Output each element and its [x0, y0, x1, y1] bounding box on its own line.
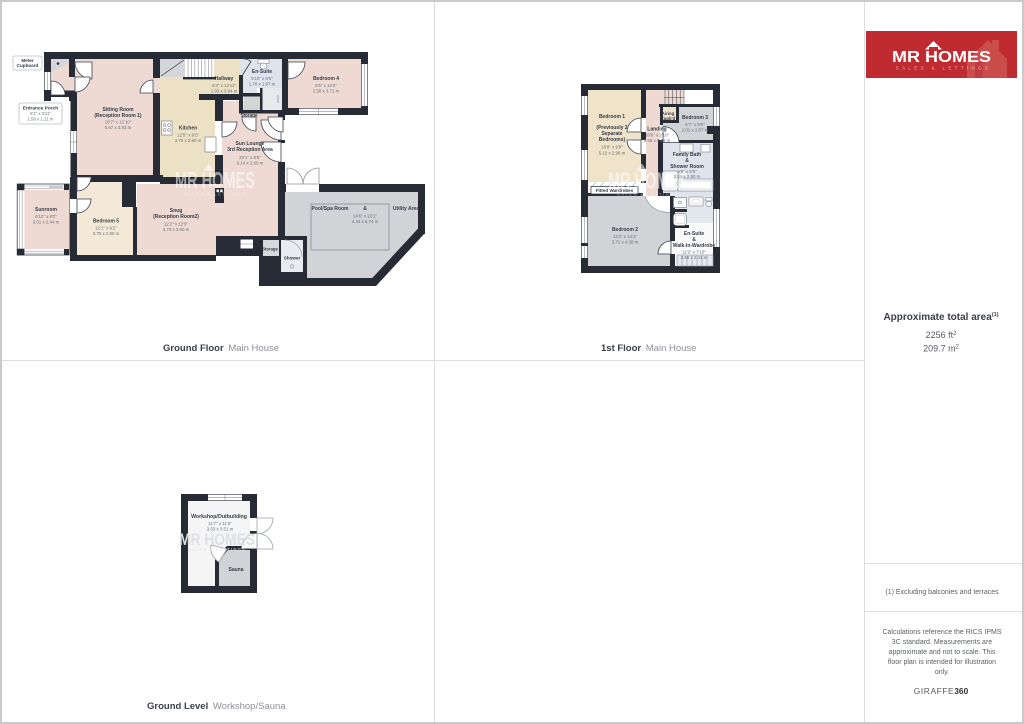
- svg-text:SALES & LETTINGS: SALES & LETTINGS: [617, 192, 679, 198]
- svg-text:5'10" x 6'5": 5'10" x 6'5": [251, 76, 273, 81]
- svg-text:Workshop/Outbuilding: Workshop/Outbuilding: [191, 514, 247, 520]
- svg-text:MR HOMES: MR HOMES: [175, 167, 255, 193]
- svg-text:12'2" x 14'4": 12'2" x 14'4": [613, 234, 638, 239]
- svg-text:12'5" x 9'2": 12'5" x 9'2": [177, 133, 199, 138]
- svg-text:(1) Excluding balconies and te: (1) Excluding balconies and terraces: [885, 589, 999, 596]
- svg-text:1st Floor Main House: 1st Floor Main House: [601, 343, 696, 354]
- svg-text:only.: only.: [935, 669, 949, 676]
- svg-text:floor plan is intended for ill: floor plan is intended for illustration: [888, 659, 996, 666]
- svg-text:SALES & LETTINGS: SALES & LETTINGS: [188, 547, 246, 552]
- svg-text:1.56 x 1.21 m: 1.56 x 1.21 m: [27, 117, 53, 122]
- svg-text:Utility Area: Utility Area: [393, 206, 419, 212]
- svg-text:6.14 x 2.60 m: 6.14 x 2.60 m: [237, 161, 264, 166]
- svg-text:&: &: [363, 206, 367, 212]
- svg-text:6'3" x 12'11": 6'3" x 12'11": [212, 83, 236, 88]
- svg-text:14'6" x 22'1": 14'6" x 22'1": [353, 214, 378, 219]
- svg-text:3.73 x 3.90 m: 3.73 x 3.90 m: [163, 227, 190, 232]
- svg-text:3.79 x 2.80 m: 3.79 x 2.80 m: [175, 138, 202, 143]
- svg-text:18'7" x 12'10": 18'7" x 12'10": [105, 120, 132, 125]
- svg-text:16'9" x 9'8": 16'9" x 9'8": [601, 145, 623, 150]
- svg-text:18'8" x 2'10": 18'8" x 2'10": [645, 133, 670, 138]
- svg-text:11'9" x 7'10": 11'9" x 7'10": [682, 250, 706, 255]
- svg-text:5.69 x 0.88 m: 5.69 x 0.88 m: [644, 138, 671, 143]
- svg-text:11'7" x 11'6": 11'7" x 11'6": [208, 521, 232, 526]
- svg-text:Bedrooms): Bedrooms): [599, 137, 626, 143]
- svg-text:Bedroom 2: Bedroom 2: [612, 227, 638, 233]
- svg-text:Bedroom 5: Bedroom 5: [93, 219, 119, 225]
- svg-text:MR HOMES: MR HOMES: [892, 49, 991, 66]
- svg-text:3C standard. Measurements are: 3C standard. Measurements are: [892, 639, 992, 646]
- svg-text:Ground Level Workshop/Sauna: Ground Level Workshop/Sauna: [147, 701, 286, 712]
- svg-text:3rd Reception Area: 3rd Reception Area: [227, 147, 273, 153]
- svg-text:approximate and not to scale.: approximate and not to scale. This: [889, 649, 996, 656]
- svg-text:3.01 x 2.44 m: 3.01 x 2.44 m: [33, 220, 60, 225]
- svg-text:(Reception Room2): (Reception Room2): [153, 214, 199, 220]
- svg-text:Sunroom: Sunroom: [35, 207, 57, 213]
- svg-text:12'2" x 12'9": 12'2" x 12'9": [164, 222, 189, 227]
- svg-text:209.7 m2: 209.7 m2: [923, 344, 960, 354]
- svg-text:Hallway: Hallway: [215, 76, 234, 82]
- svg-text:SALES & LETTINGS: SALES & LETTINGS: [896, 66, 992, 71]
- svg-text:Kitchen: Kitchen: [179, 126, 197, 132]
- svg-text:Cupboard: Cupboard: [17, 63, 39, 68]
- svg-text:3.70 x 2.80 m: 3.70 x 2.80 m: [93, 231, 120, 236]
- svg-text:1.93 x 3.94 m: 1.93 x 3.94 m: [211, 89, 238, 94]
- svg-text:20'1" x 8'6": 20'1" x 8'6": [239, 155, 261, 160]
- svg-text:3.58 x 2.41 m: 3.58 x 2.41 m: [681, 255, 708, 260]
- svg-text:5.12 x 2.96 m: 5.12 x 2.96 m: [599, 151, 626, 156]
- svg-text:Pool/Spa Room: Pool/Spa Room: [312, 206, 350, 212]
- svg-text:GIRAFFE360: GIRAFFE360: [914, 686, 969, 696]
- svg-text:Walk-In-Wardrobe: Walk-In-Wardrobe: [673, 243, 716, 249]
- svg-text:4.44 x 6.74 m: 4.44 x 6.74 m: [352, 219, 379, 224]
- svg-text:2256 ft2: 2256 ft2: [926, 330, 958, 340]
- svg-text:Meter: Meter: [21, 58, 33, 63]
- svg-text:2.01 x 2.87 m: 2.01 x 2.87 m: [682, 128, 709, 133]
- svg-text:8'5" x 12'2": 8'5" x 12'2": [315, 83, 337, 88]
- svg-text:Shower: Shower: [284, 256, 301, 261]
- svg-text:5.67 x 3.93 m: 5.67 x 3.93 m: [105, 125, 132, 130]
- svg-text:Bedroom 1: Bedroom 1: [599, 114, 625, 120]
- svg-text:1.79 x 1.97 m: 1.79 x 1.97 m: [249, 82, 276, 87]
- svg-text:SALES & LETTINGS: SALES & LETTINGS: [184, 192, 246, 198]
- svg-text:2.58 x 3.72 m: 2.58 x 3.72 m: [313, 89, 340, 94]
- svg-text:Bedroom 3: Bedroom 3: [682, 115, 708, 121]
- svg-text:6'7" x 9'5": 6'7" x 9'5": [685, 122, 705, 127]
- svg-text:MR HOMES: MR HOMES: [608, 168, 688, 194]
- svg-text:9'10" x 8'0": 9'10" x 8'0": [35, 214, 57, 219]
- svg-text:Sauna: Sauna: [228, 567, 243, 573]
- svg-text:12'1" x 9'2": 12'1" x 9'2": [95, 226, 117, 231]
- svg-text:Cupb'd: Cupb'd: [661, 116, 676, 121]
- svg-text:(Reception Room 1): (Reception Room 1): [94, 113, 142, 119]
- svg-text:Storage: Storage: [240, 113, 258, 118]
- svg-text:3.71 x 4.38 m: 3.71 x 4.38 m: [612, 240, 639, 245]
- svg-text:Bedroom 4: Bedroom 4: [313, 76, 339, 82]
- svg-text:En-Suite: En-Suite: [252, 69, 272, 75]
- svg-text:Ground Floor Main House: Ground Floor Main House: [163, 343, 279, 354]
- svg-text:Storage: Storage: [262, 247, 278, 252]
- svg-text:5'1" x 3'11": 5'1" x 3'11": [30, 111, 51, 116]
- svg-text:Calculations reference the RIC: Calculations reference the RICS IPMS: [882, 629, 1001, 636]
- svg-text:Approximate total area(1): Approximate total area(1): [883, 312, 998, 323]
